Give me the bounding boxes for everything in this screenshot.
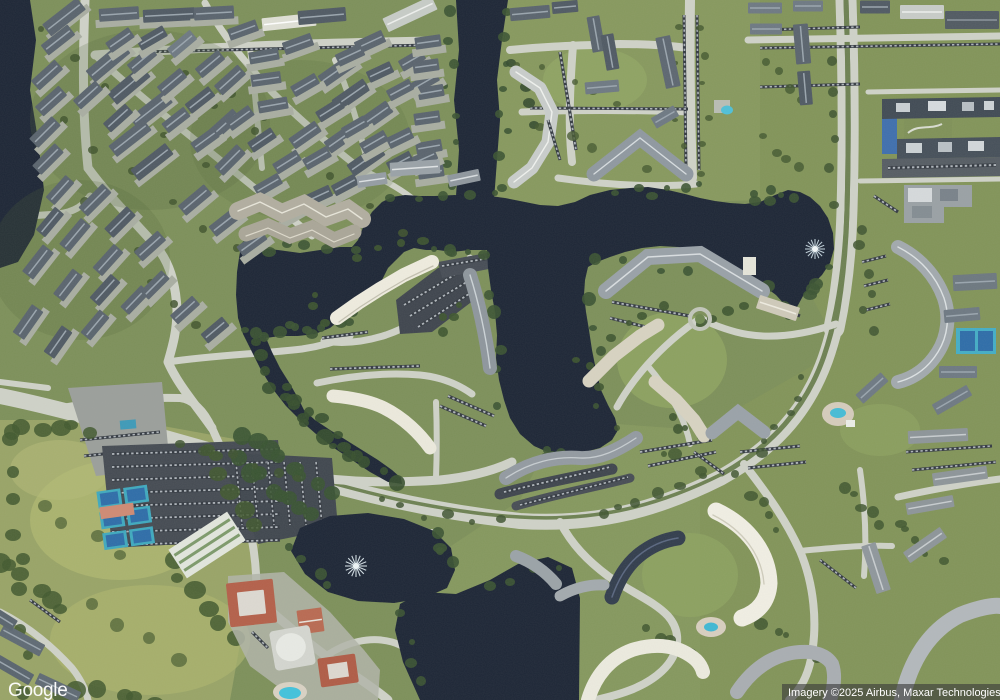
svg-text:Google: Google [8, 680, 67, 700]
svg-text:Imagery ©2025 Airbus, Maxar Te: Imagery ©2025 Airbus, Maxar Technologies [788, 687, 1000, 699]
